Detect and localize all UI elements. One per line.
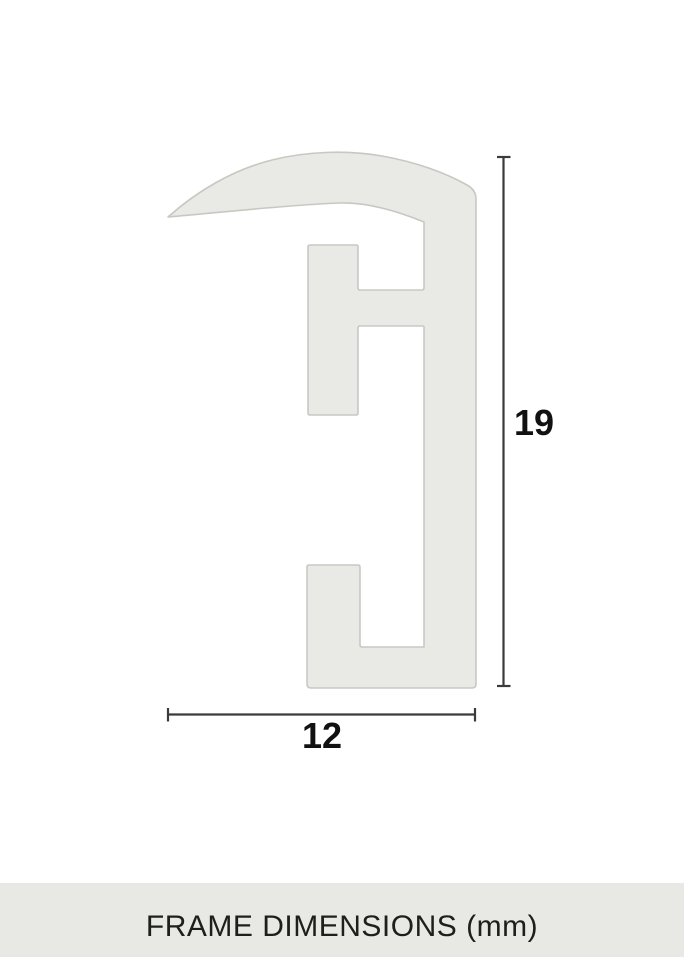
frame-profile-cross-section — [168, 152, 476, 688]
drawing-area: 19 12 — [0, 0, 684, 883]
height-dimension-value: 19 — [514, 405, 554, 441]
width-dimension-value: 12 — [302, 718, 342, 754]
footer-title: FRAME DIMENSIONS (mm) — [146, 910, 538, 944]
footer-bar: FRAME DIMENSIONS (mm) — [0, 883, 684, 957]
height-dimension-line — [497, 157, 511, 686]
frame-dimensions-page: 19 12 FRAME DIMENSIONS (mm) — [0, 0, 684, 957]
